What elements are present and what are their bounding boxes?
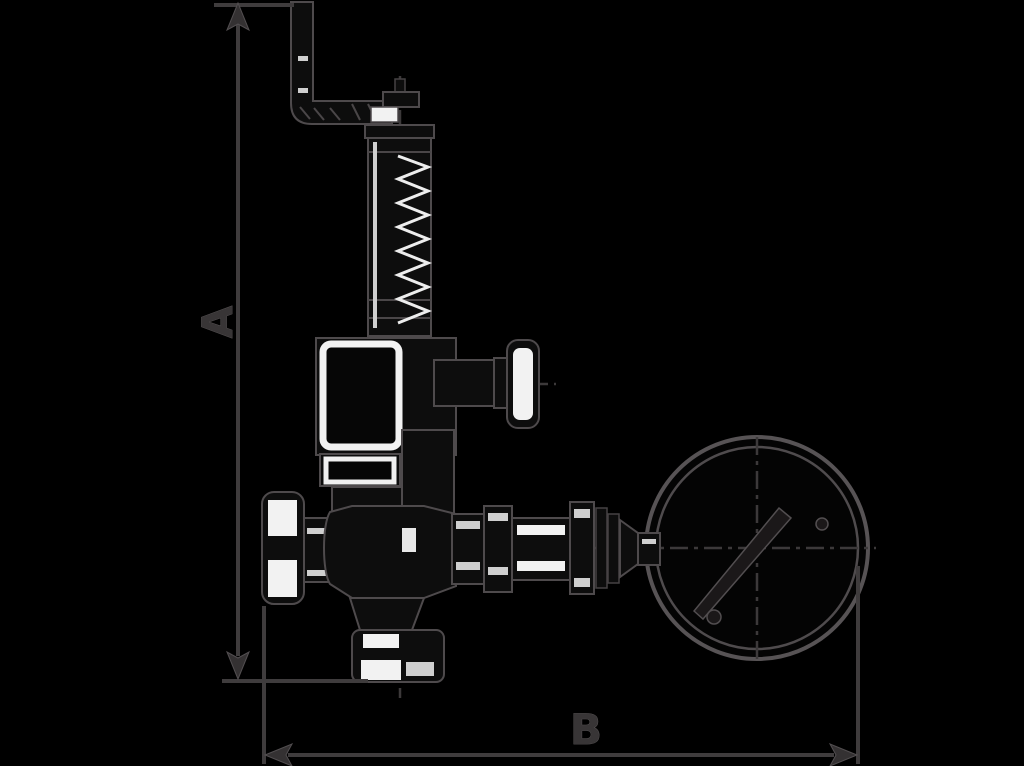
body-taper — [350, 598, 424, 630]
handwheel-face-upper — [268, 500, 297, 536]
handwheel-face-lower — [268, 560, 297, 597]
spindle-pin — [395, 79, 405, 93]
pipe-highlight — [456, 562, 480, 570]
housing-white-band — [323, 344, 399, 447]
pipe-highlight — [488, 513, 508, 521]
pipe-highlight — [517, 525, 565, 535]
pipe-highlight — [456, 521, 480, 529]
pipe-highlight — [574, 578, 590, 587]
union-ring — [596, 508, 607, 588]
gauge-needle-hub — [707, 610, 721, 624]
pipe-highlight — [574, 509, 590, 518]
spindle-nut — [383, 92, 419, 107]
bonnet-top-plate — [365, 125, 434, 138]
union-ring — [608, 514, 619, 583]
gag-handwheel-face — [513, 348, 533, 420]
lever-detail — [298, 88, 308, 93]
pipe-highlight — [642, 539, 656, 544]
spring-bonnet — [365, 125, 434, 336]
gag-stem — [434, 360, 494, 406]
gauge-stem-pipe — [638, 533, 660, 565]
dimension-a-label: A — [193, 305, 242, 338]
gauge-stop-pin — [816, 518, 828, 530]
valve-seat-highlight — [402, 528, 416, 552]
body-chamber — [324, 506, 456, 598]
lever-detail — [298, 56, 308, 61]
valve-dimension-diagram: A B — [0, 0, 1024, 766]
body-top-flange-white — [326, 459, 394, 482]
pipe-highlight — [517, 561, 565, 571]
outlet-flange-step — [363, 634, 399, 648]
pipe-highlight — [488, 567, 508, 575]
drawing-canvas: A B — [0, 0, 1024, 766]
dimension-b-label: B — [570, 705, 602, 754]
gag-hub — [494, 358, 508, 408]
spindle-highlight — [373, 142, 377, 328]
outlet-flange-step — [406, 662, 434, 676]
lever-fork-slot — [371, 107, 398, 122]
outlet-flange-step — [361, 660, 401, 680]
